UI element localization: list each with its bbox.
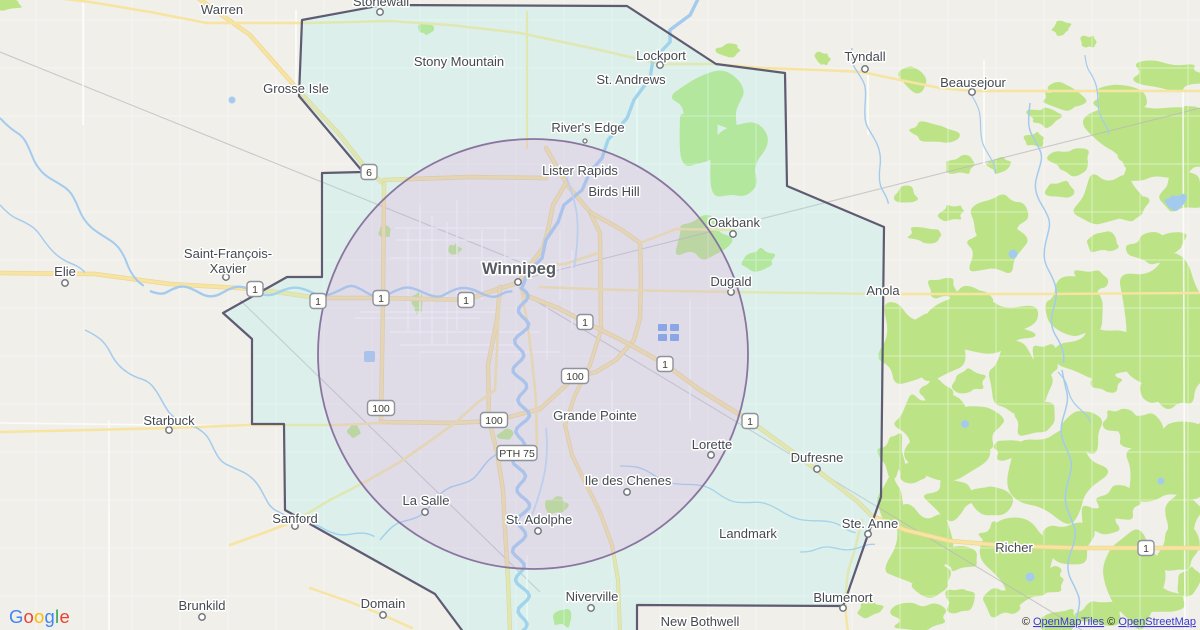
svg-text:o: o (24, 606, 34, 627)
svg-text:o: o (34, 606, 44, 627)
svg-text:1: 1 (662, 359, 668, 371)
svg-text:Sanford: Sanford (272, 511, 318, 526)
svg-text:Tyndall: Tyndall (844, 49, 885, 64)
svg-text:Oakbank: Oakbank (708, 215, 761, 230)
svg-text:© OpenMapTiles © OpenStreetMap: © OpenMapTiles © OpenStreetMap (1022, 616, 1196, 628)
svg-text:Domain: Domain (361, 596, 406, 611)
svg-text:Saint-François-: Saint-François- (184, 246, 272, 261)
svg-text:Landmark: Landmark (719, 526, 777, 541)
svg-text:Anola: Anola (866, 283, 900, 298)
svg-text:Lister Rapids: Lister Rapids (542, 163, 618, 178)
svg-text:Grande Pointe: Grande Pointe (553, 408, 637, 423)
svg-text:Lorette: Lorette (692, 437, 732, 452)
svg-text:1: 1 (463, 295, 469, 307)
svg-text:Birds Hill: Birds Hill (588, 184, 639, 199)
svg-text:Blumenort: Blumenort (813, 590, 873, 605)
svg-text:St. Andrews: St. Andrews (596, 72, 666, 87)
svg-text:Niverville: Niverville (566, 589, 619, 604)
svg-text:Richer: Richer (995, 540, 1033, 555)
svg-text:PTH 75: PTH 75 (499, 448, 535, 460)
svg-text:New Bothwell: New Bothwell (661, 614, 740, 629)
svg-text:St. Adolphe: St. Adolphe (506, 512, 573, 527)
svg-text:100: 100 (485, 415, 503, 427)
svg-text:Ste. Anne: Ste. Anne (842, 516, 898, 531)
svg-text:River's Edge: River's Edge (551, 120, 624, 135)
svg-text:Xavier: Xavier (210, 261, 248, 276)
svg-text:Lockport: Lockport (636, 48, 686, 63)
svg-text:Grosse Isle: Grosse Isle (263, 81, 329, 96)
svg-text:Beausejour: Beausejour (940, 75, 1006, 90)
svg-text:Dufresne: Dufresne (791, 450, 844, 465)
svg-text:l: l (55, 606, 59, 627)
svg-text:1: 1 (315, 296, 321, 308)
svg-text:1: 1 (747, 416, 753, 428)
svg-text:1: 1 (378, 293, 384, 305)
svg-text:G: G (9, 606, 23, 627)
svg-text:Ile des Chenes: Ile des Chenes (585, 473, 672, 488)
svg-text:1: 1 (1143, 543, 1149, 555)
svg-text:e: e (60, 606, 70, 627)
svg-text:100: 100 (566, 371, 584, 383)
svg-text:1: 1 (252, 284, 258, 296)
svg-text:Winnipeg: Winnipeg (482, 260, 556, 278)
svg-text:g: g (45, 606, 55, 627)
svg-text:1: 1 (582, 317, 588, 329)
svg-text:Stonewall: Stonewall (353, 0, 409, 9)
svg-text:Warren: Warren (201, 2, 243, 17)
svg-text:Dugald: Dugald (710, 274, 751, 289)
svg-text:Starbuck: Starbuck (143, 413, 195, 428)
svg-text:Stony Mountain: Stony Mountain (414, 54, 504, 69)
svg-text:6: 6 (366, 167, 372, 179)
svg-text:La Salle: La Salle (403, 493, 450, 508)
svg-text:100: 100 (372, 403, 390, 415)
svg-text:Elie: Elie (54, 264, 76, 279)
svg-text:Brunkild: Brunkild (179, 598, 226, 613)
